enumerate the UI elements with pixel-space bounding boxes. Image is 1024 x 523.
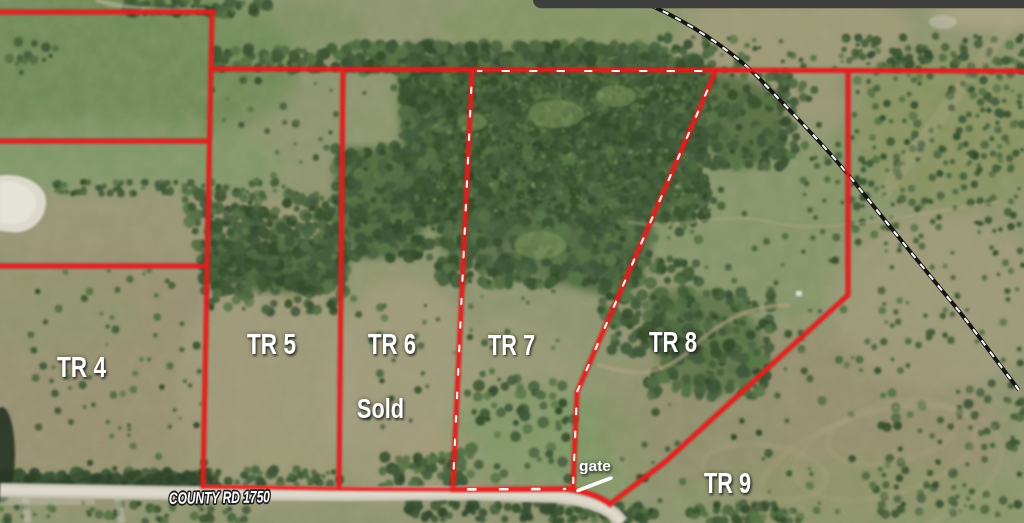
svg-text:TR 8: TR 8 [649,325,697,358]
svg-text:Sold: Sold [357,394,404,424]
svg-text:TR 6: TR 6 [368,327,416,360]
svg-text:TR 4: TR 4 [57,350,106,383]
svg-text:TR 7: TR 7 [488,328,535,361]
svg-text:TR 9: TR 9 [704,466,751,499]
svg-text:gate: gate [579,458,611,474]
svg-text:COUNTY RD 1750: COUNTY RD 1750 [169,487,271,507]
svg-text:TR 5: TR 5 [247,327,296,360]
